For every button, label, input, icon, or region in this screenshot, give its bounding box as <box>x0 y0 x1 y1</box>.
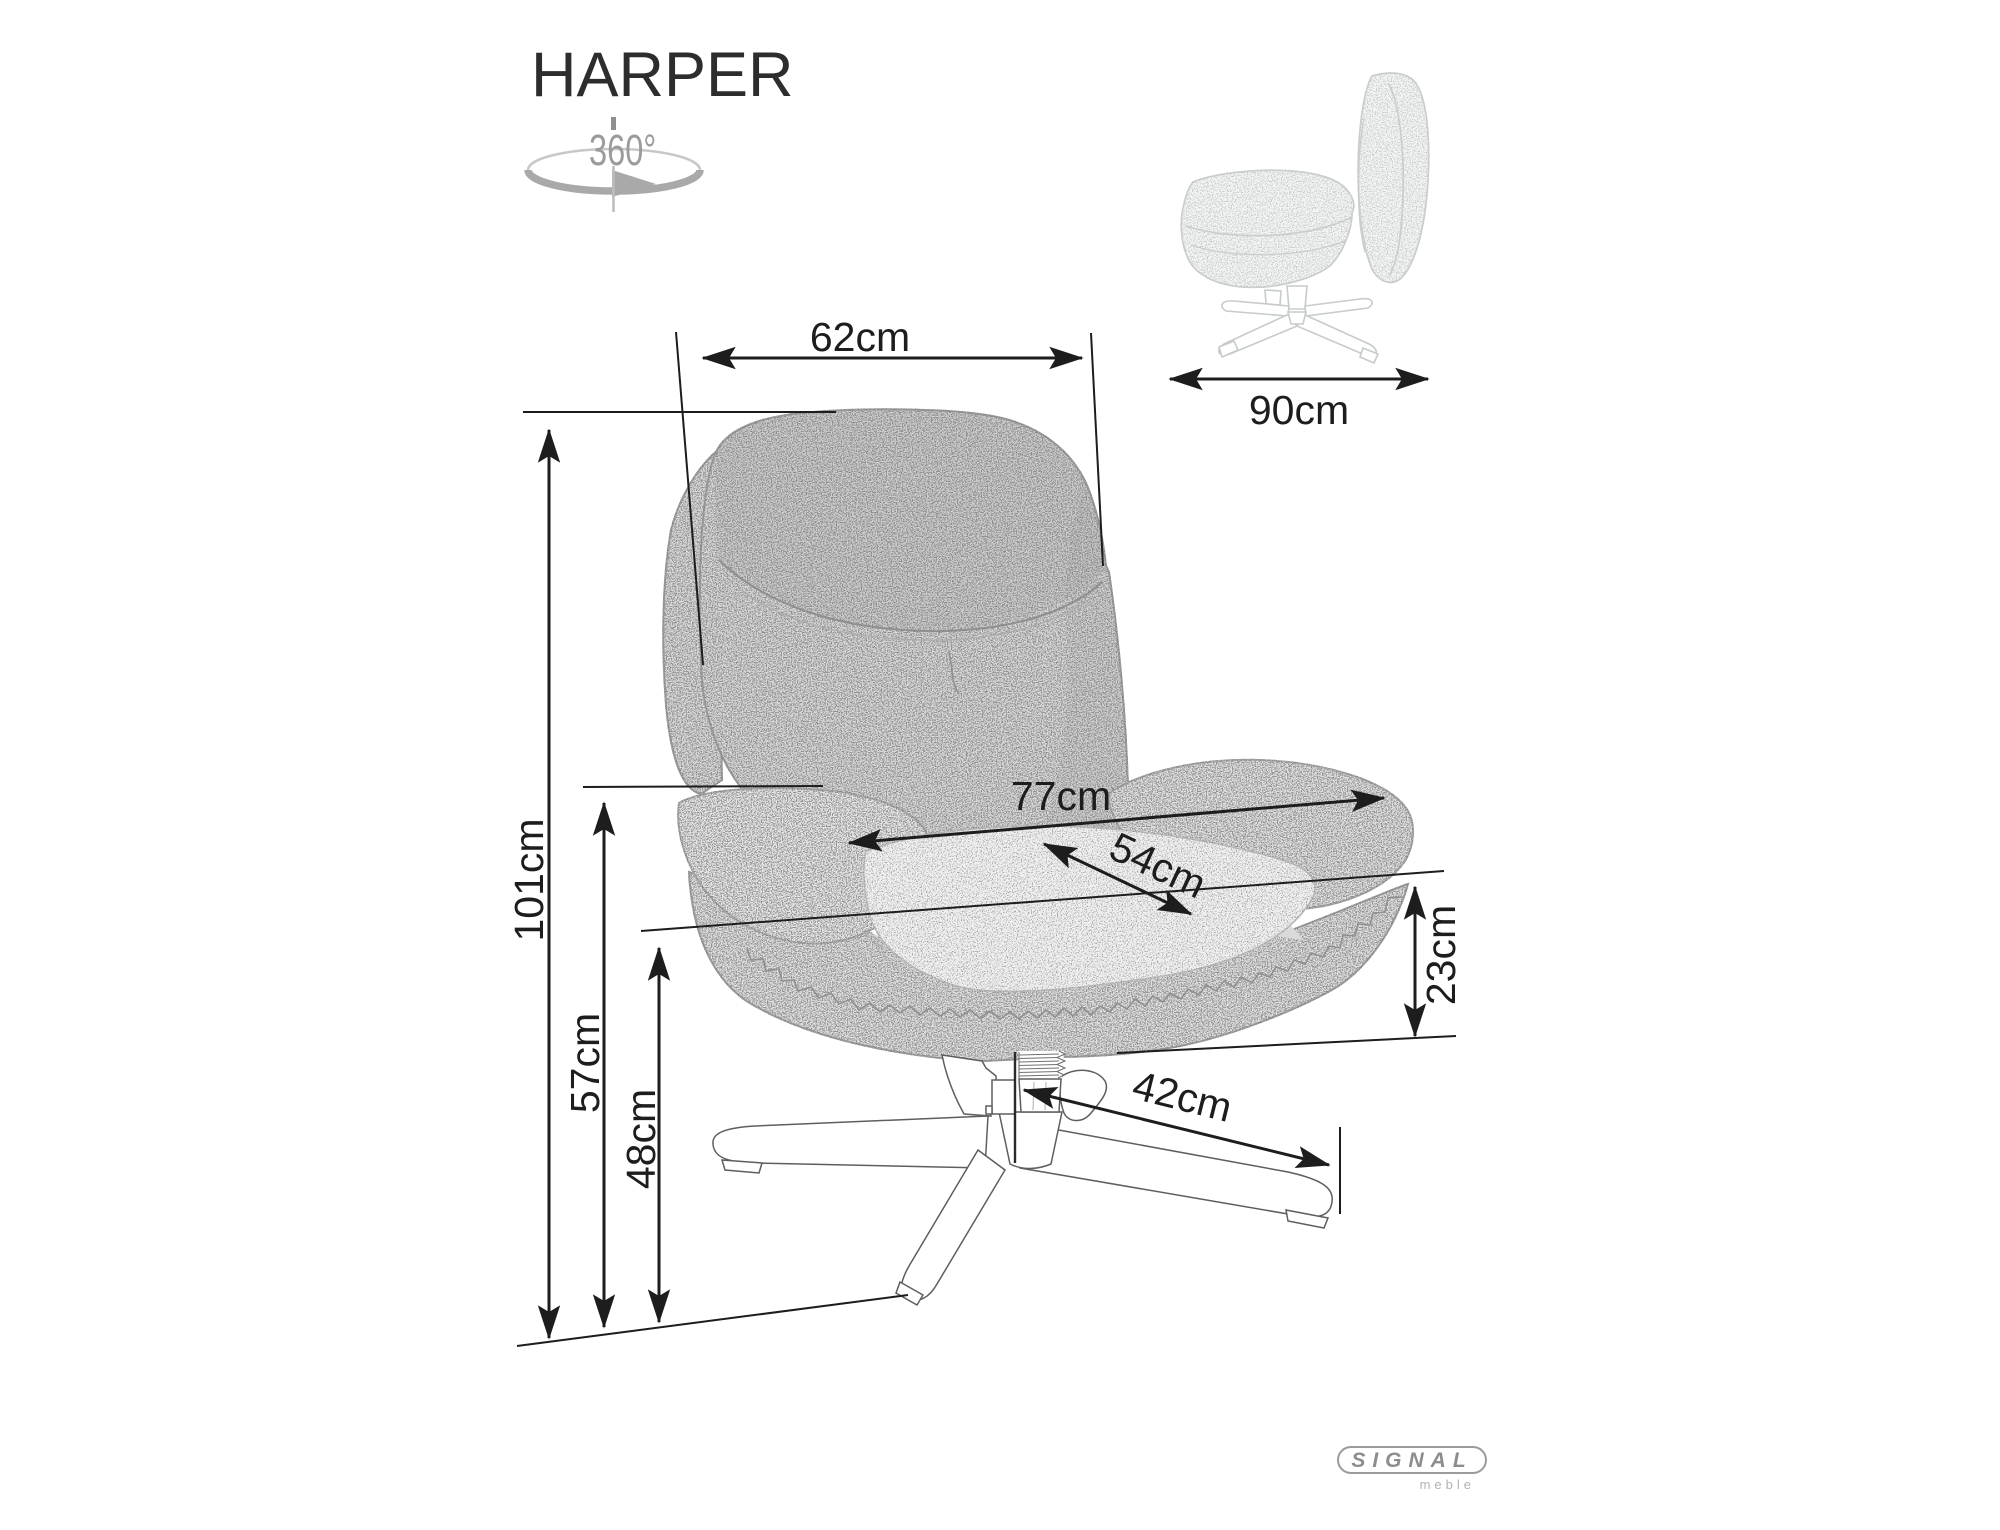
svg-text:57cm: 57cm <box>562 1013 608 1113</box>
svg-text:101cm: 101cm <box>506 818 552 941</box>
svg-text:360°: 360° <box>589 126 656 175</box>
svg-text:62cm: 62cm <box>810 314 910 360</box>
svg-text:SIGNAL: SIGNAL <box>1351 1449 1472 1472</box>
svg-text:23cm: 23cm <box>1418 905 1464 1005</box>
svg-text:48cm: 48cm <box>618 1089 664 1189</box>
svg-text:90cm: 90cm <box>1249 387 1349 433</box>
svg-text:meble: meble <box>1420 1477 1475 1492</box>
svg-text:77cm: 77cm <box>1011 773 1111 819</box>
svg-text:HARPER: HARPER <box>531 40 794 110</box>
